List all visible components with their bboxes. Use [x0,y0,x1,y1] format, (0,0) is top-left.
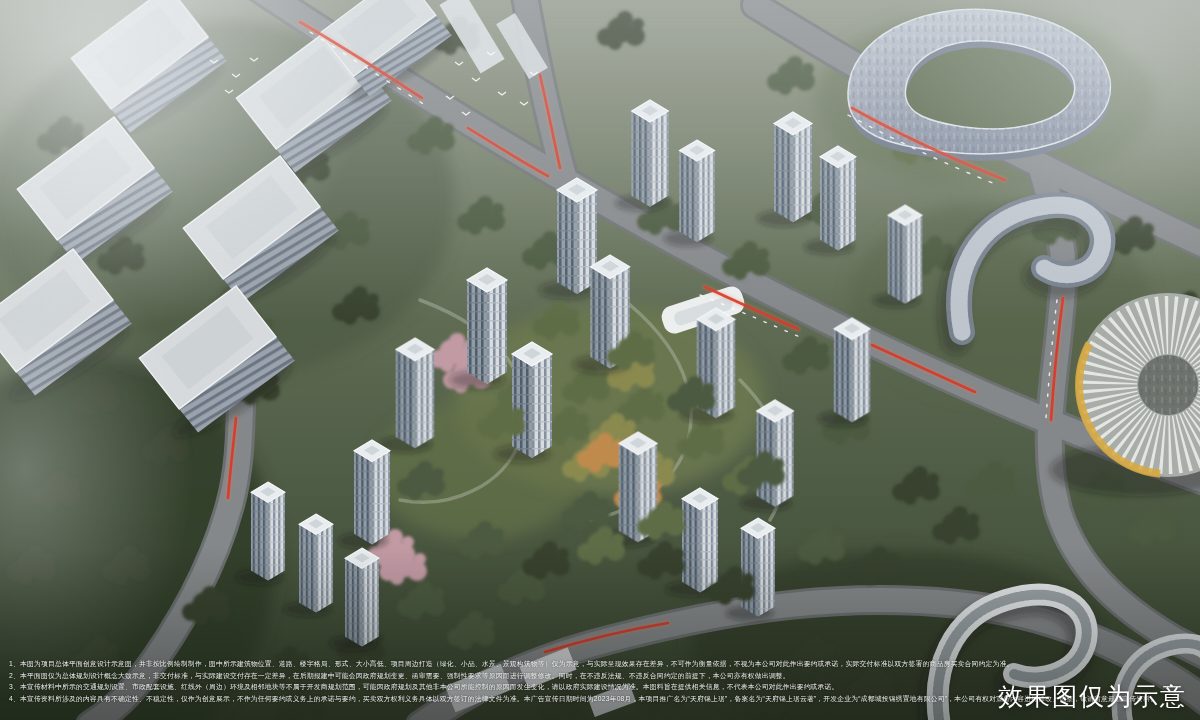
atmospheric-haze [0,0,1200,720]
disclaimer-line-3: 3、本宣传材料中所示的交通规划设置、市政配套设施、红线外（周边）环境及相邻地块等… [9,681,1157,693]
disclaimer-line-4: 4、本宣传资料所涉及的内容具有不确定性、不稳定性，仅作为创意展示，不作为任何要约… [9,693,1157,705]
disclaimer-line-2: 2、本平面图仅为总体规划设计概念大致示意，非交付标准，与实际建设交付存在一定差异… [9,670,1157,682]
rendering-scene [0,0,1200,720]
disclaimer-text-block: 1、本图为项目总体平面创意设计示意图，并非按比例绘制制作，图中所示建筑物位置、道… [9,658,1157,704]
watermark-label: 效果图仅为示意 [998,680,1187,713]
disclaimer-line-1: 1、本图为项目总体平面创意设计示意图，并非按比例绘制制作，图中所示建筑物位置、道… [9,658,1157,670]
aerial-rendering-image: 1、本图为项目总体平面创意设计示意图，并非按比例绘制制作，图中所示建筑物位置、道… [0,0,1200,720]
